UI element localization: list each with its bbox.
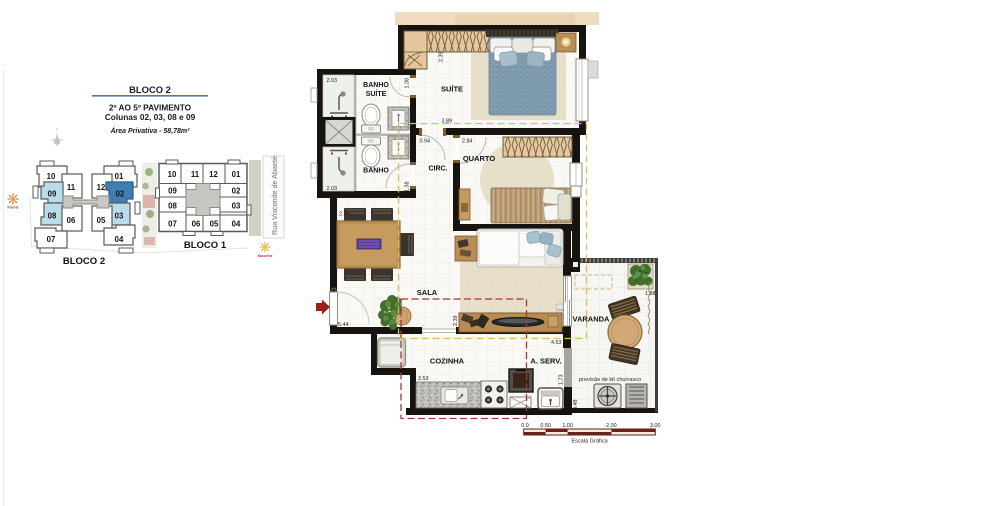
svg-text:09: 09 [48,190,57,199]
svg-text:Colunas 02, 03, 08 e 09: Colunas 02, 03, 08 e 09 [105,112,196,122]
svg-text:1.73: 1.73 [559,375,565,386]
svg-text:1.00: 1.00 [562,423,573,429]
svg-text:03: 03 [115,212,124,221]
svg-text:5.44: 5.44 [338,322,349,328]
svg-text:BANHO: BANHO [363,168,389,175]
svg-text:2.39: 2.39 [453,316,459,327]
svg-text:08: 08 [48,212,57,221]
svg-text:1.88: 1.88 [645,291,656,297]
svg-text:01: 01 [115,172,124,181]
svg-text:12: 12 [209,170,218,179]
svg-text:07: 07 [47,235,56,244]
svg-text:BLOCO 1: BLOCO 1 [184,240,227,251]
svg-text:Escala Gráfica: Escala Gráfica [571,439,608,445]
svg-text:3.53: 3.53 [418,376,429,382]
svg-text:4.53: 4.53 [551,340,562,346]
svg-text:03: 03 [232,202,241,211]
svg-text:05: 05 [97,216,106,225]
svg-text:11: 11 [191,170,200,179]
svg-text:0.94: 0.94 [420,139,431,145]
svg-text:0.0: 0.0 [521,423,529,429]
svg-text:2.84: 2.84 [462,139,473,145]
svg-text:CIRC.: CIRC. [428,166,447,173]
svg-text:2.03: 2.03 [327,186,338,192]
svg-text:QUARTO: QUARTO [463,154,496,163]
svg-text:01: 01 [232,170,241,179]
svg-text:Nascente: Nascente [257,254,272,258]
svg-text:3.48: 3.48 [573,400,579,411]
svg-text:COZINHA: COZINHA [430,357,465,366]
svg-text:2.09: 2.09 [456,177,462,188]
svg-text:10: 10 [47,172,56,181]
svg-text:Rua Visconde de Abaeté: Rua Visconde de Abaeté [270,156,279,235]
svg-text:0.50: 0.50 [540,423,551,429]
svg-text:07: 07 [168,220,177,229]
svg-text:06: 06 [67,216,76,225]
svg-text:2.03: 2.03 [327,78,338,84]
svg-text:BLOCO 2: BLOCO 2 [63,256,105,267]
svg-text:12: 12 [97,183,106,192]
svg-text:A. SERV.: A. SERV. [530,357,561,366]
svg-text:SUÍTE: SUÍTE [366,89,387,98]
svg-text:2.39: 2.39 [439,52,445,63]
svg-text:06: 06 [192,220,201,229]
svg-text:10: 10 [168,170,177,179]
svg-text:SUÍTE: SUÍTE [441,85,463,94]
svg-text:previsão de kit churrasco: previsão de kit churrasco [579,377,641,383]
svg-text:02: 02 [232,187,241,196]
svg-text:BLOCO 2: BLOCO 2 [129,84,171,95]
svg-text:1.38: 1.38 [405,182,411,193]
svg-text:2º AO 5º PAVIMENTO: 2º AO 5º PAVIMENTO [109,103,192,113]
svg-text:04: 04 [232,220,241,229]
svg-text:3.00: 3.00 [650,423,661,429]
svg-text:2.79: 2.79 [339,212,350,218]
svg-text:08: 08 [168,202,177,211]
svg-text:Poente: Poente [7,206,18,210]
svg-text:1.38: 1.38 [405,78,411,89]
svg-text:09: 09 [168,187,177,196]
svg-text:04: 04 [115,235,124,244]
svg-text:Área Privativa - 58,78m²: Área Privativa - 58,78m² [110,126,191,135]
svg-text:02: 02 [116,190,125,199]
svg-text:11: 11 [67,183,76,192]
svg-text:BANHO: BANHO [363,82,389,89]
svg-text:2.00: 2.00 [606,423,617,429]
svg-text:SALA: SALA [417,288,438,297]
svg-text:VARANDA: VARANDA [573,315,611,324]
svg-text:3.89: 3.89 [442,119,453,125]
svg-text:05: 05 [210,220,219,229]
